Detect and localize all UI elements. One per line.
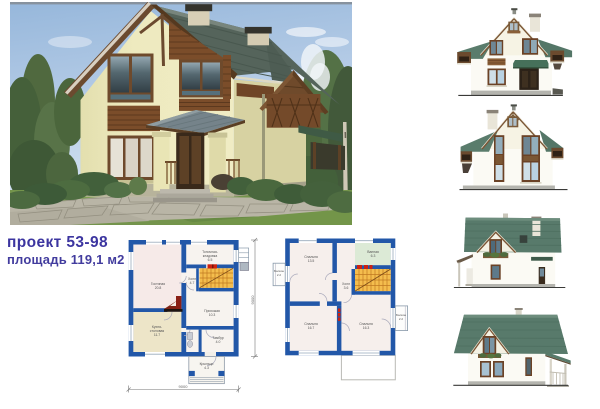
svg-text:9000: 9000	[250, 295, 255, 305]
svg-text:4.7: 4.7	[190, 281, 195, 285]
svg-text:3.6: 3.6	[344, 286, 349, 290]
svg-text:10.3: 10.3	[209, 313, 216, 317]
svg-text:20.8: 20.8	[155, 286, 162, 290]
svg-text:9000: 9000	[179, 384, 189, 389]
svg-text:16.7: 16.7	[308, 326, 315, 330]
svg-text:6.3: 6.3	[371, 254, 376, 258]
svg-text:6.5: 6.5	[208, 258, 213, 262]
svg-text:4.0: 4.0	[216, 340, 221, 344]
svg-text:11.7: 11.7	[154, 333, 160, 337]
svg-text:2.2: 2.2	[277, 273, 282, 277]
svg-text:16.3: 16.3	[363, 326, 370, 330]
svg-text:4.3: 4.3	[204, 366, 209, 370]
svg-text:13.5: 13.5	[308, 259, 315, 263]
svg-text:2.2: 2.2	[399, 317, 404, 321]
